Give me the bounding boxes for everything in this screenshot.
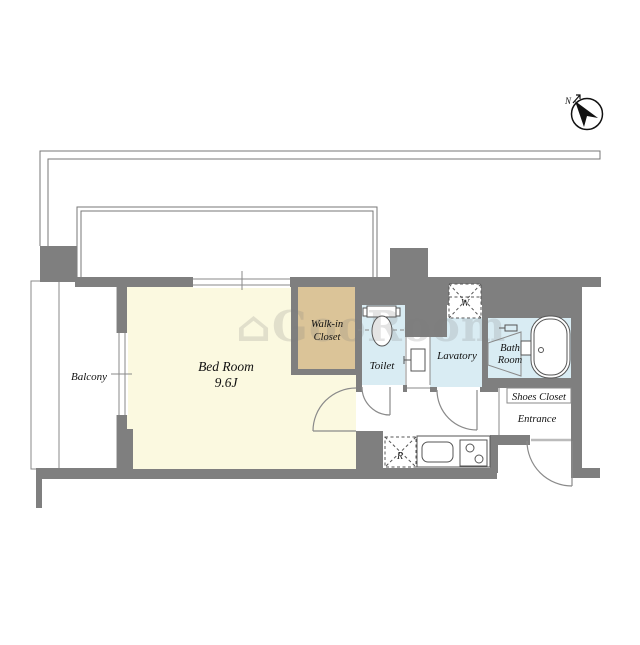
bedroom-size-label: 9.6J	[215, 375, 239, 390]
watermark: ⌂GooRoom	[236, 302, 506, 351]
walk-in-closet-label-line1: Walk-in	[311, 319, 343, 330]
wall-top-pillar	[390, 248, 428, 277]
wall-right	[571, 287, 582, 468]
wall-left-block	[40, 246, 77, 282]
north-label: N	[564, 96, 572, 106]
lavatory-label: Lavatory	[436, 350, 477, 362]
bathroom-label-line2: Room	[497, 355, 523, 366]
toilet-label: Toilet	[370, 360, 396, 372]
wall-top	[75, 277, 601, 287]
shoes-closet-label: Shoes Closet	[512, 392, 567, 403]
wall-bedroom-left-step	[127, 429, 133, 469]
toilet-doorway	[362, 385, 403, 392]
refrigerator-label: R	[396, 451, 403, 462]
wall-bedroom-left-upper	[117, 282, 127, 333]
wall-closet-bottom	[291, 369, 355, 375]
entrance-label: Entrance	[517, 414, 557, 425]
bathroom-label-line1: Bath	[500, 343, 520, 354]
washbasin-body	[411, 349, 425, 371]
wall-entrance-left	[495, 435, 530, 445]
wall-bottom	[36, 468, 497, 479]
walk-in-closet-label-line2: Closet	[314, 332, 342, 343]
wall-kitchen-left	[356, 431, 383, 470]
balcony-label: Balcony	[71, 371, 107, 383]
wall-bath-bottom	[486, 378, 571, 388]
wall-right-foot	[571, 468, 600, 478]
wall-bedroom-left-lower	[117, 415, 127, 469]
bedroom-label: Bed Room	[198, 359, 254, 374]
floorplan-page: ⌂GooRoom Balcony Bed Room 9.6J Walk-in C…	[0, 0, 640, 640]
floorplan-drawing: ⌂GooRoom Balcony Bed Room 9.6J Walk-in C…	[0, 0, 640, 640]
wall-bottom-stub	[36, 468, 42, 508]
